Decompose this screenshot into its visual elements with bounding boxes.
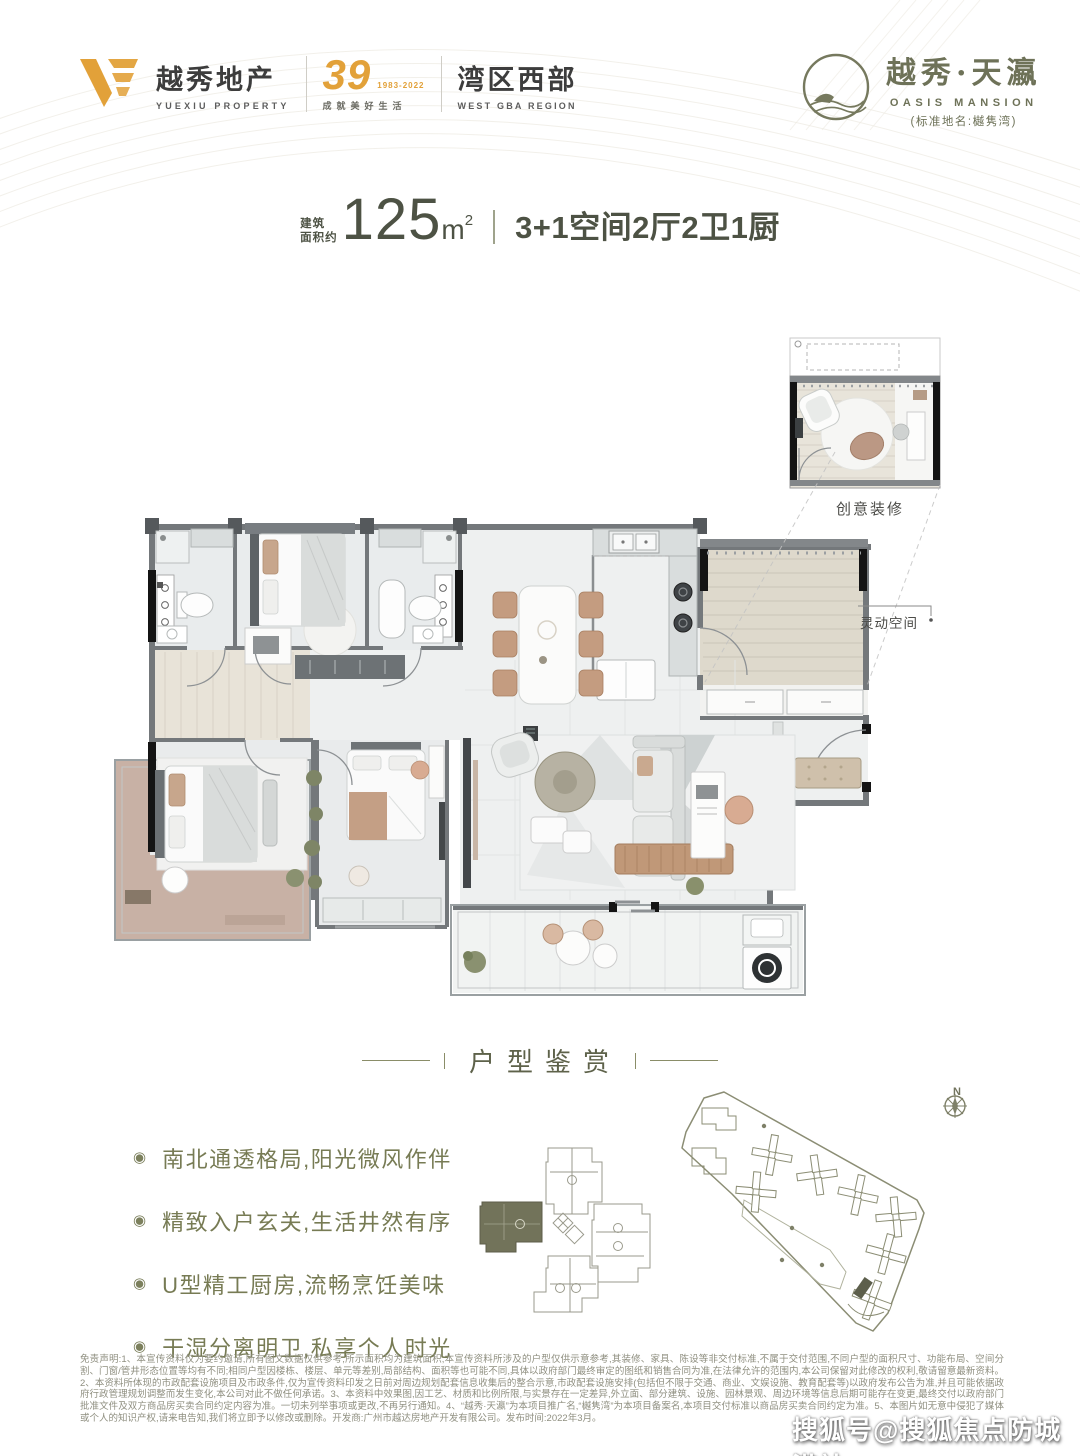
yuexiu-ye-logo-icon	[78, 57, 140, 111]
header-developer-logos: 越秀地产 YUEXIU PROPERTY 39 1983-2022 成就美好生活…	[78, 56, 578, 112]
inset-caption-label: 创意装修	[795, 498, 945, 519]
bullet-icon: ◉	[133, 1210, 146, 1232]
region-badge: 湾区西部 WEST GBA REGION	[458, 58, 578, 111]
anniversary-badge: 39 1983-2022 成就美好生活	[323, 56, 425, 112]
bullet-icon: ◉	[133, 1273, 146, 1295]
flexible-space-label: 灵动空间	[860, 612, 918, 632]
header-divider	[306, 56, 307, 112]
inset-creative-room	[790, 338, 940, 488]
dining-area	[493, 586, 603, 704]
site-plan	[672, 1082, 1012, 1362]
oasis-mansion-circle-icon	[796, 49, 876, 129]
yuexiu-cn: 越秀地产	[156, 58, 290, 97]
section-title: 户型鉴赏	[469, 1042, 621, 1079]
section-cap-left	[444, 1053, 445, 1069]
bullet-icon: ◉	[133, 1147, 146, 1169]
project-name-block: 越秀·天瀛 OASIS MANSION (标准地名:樾隽湾)	[886, 48, 1041, 129]
area-value: 125m2	[342, 186, 473, 253]
feature-item: ◉U型精工厨房,流畅烹饪美味	[133, 1268, 452, 1300]
compass-north-label: N	[946, 1086, 968, 1098]
header-project-logo: 越秀·天瀛 OASIS MANSION (标准地名:樾隽湾)	[796, 48, 1041, 129]
yuexiu-en: YUEXIU PROPERTY	[156, 101, 290, 111]
unit-key-plan	[468, 1128, 673, 1340]
headline-divider	[493, 210, 495, 244]
sohu-watermark: 搜狐号@搜狐焦点防城港站	[792, 1410, 1080, 1456]
anniversary-number: 39	[323, 56, 372, 94]
headline-area-spec: 建筑 面积约 125m2 3+1空间2厅2卫1厨	[0, 186, 1080, 253]
region-cn: 湾区西部	[458, 58, 578, 97]
section-cap-right	[635, 1053, 636, 1069]
yuexiu-property-name: 越秀地产 YUEXIU PROPERTY	[156, 58, 290, 111]
feature-item: ◉南北通透格局,阳光微风作伴	[133, 1142, 452, 1174]
region-en: WEST GBA REGION	[458, 101, 578, 111]
section-line-right	[650, 1060, 718, 1061]
poster-page: 越秀地产 YUEXIU PROPERTY 39 1983-2022 成就美好生活…	[0, 0, 1080, 1456]
layout-spec: 3+1空间2厅2卫1厨	[515, 202, 780, 247]
project-standard-name: (标准地名:樾隽湾)	[911, 113, 1017, 129]
feature-item: ◉精致入户玄关,生活井然有序	[133, 1205, 452, 1237]
area-prefix-label: 建筑 面积约	[300, 217, 338, 245]
anniversary-years: 1983-2022	[377, 81, 424, 94]
project-cn: 越秀·天瀛	[886, 48, 1041, 92]
section-header: 户型鉴赏	[0, 1042, 1080, 1079]
floorplan-drawing	[95, 330, 945, 1010]
anniversary-slogan: 成就美好生活	[323, 99, 407, 112]
section-line-left	[362, 1060, 430, 1061]
highlighted-building	[846, 1274, 897, 1325]
highlighted-unit	[480, 1202, 542, 1252]
header-divider	[441, 56, 442, 112]
project-en: OASIS MANSION	[890, 97, 1038, 109]
